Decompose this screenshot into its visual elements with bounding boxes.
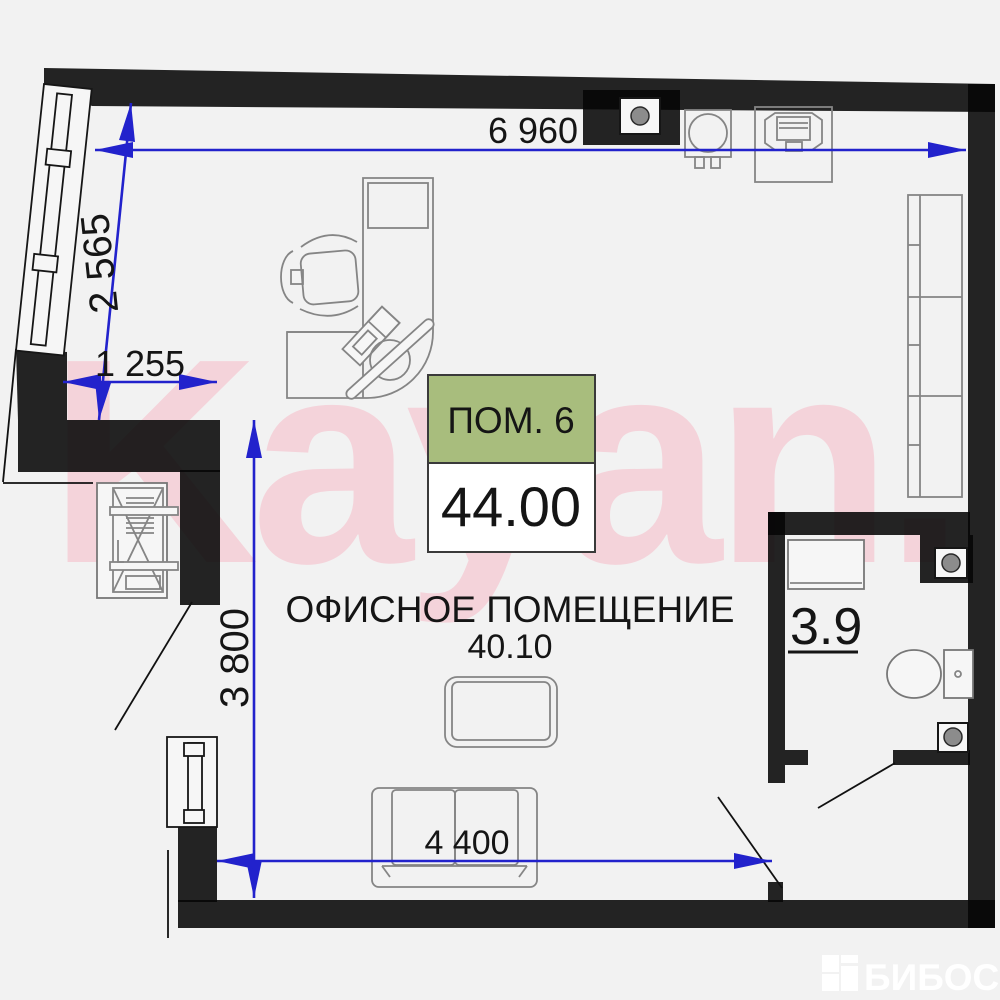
vent-circle — [631, 107, 649, 125]
room-label-box: ПОМ. 6 44.00 — [428, 375, 595, 552]
vent-circle — [942, 554, 960, 572]
vent-shaft-icon-bath-bottom — [938, 723, 968, 752]
elevator-shaft — [97, 483, 178, 598]
dimension-value: 3 800 — [213, 608, 257, 708]
sink-outline — [788, 540, 864, 589]
room-number: ПОМ. 6 — [447, 400, 574, 441]
window-mullion — [46, 149, 72, 167]
bathroom-area-label: 3.9 — [788, 598, 862, 656]
room-area: 44.00 — [441, 475, 581, 538]
wall-left-stub — [16, 348, 67, 420]
wall-lower-left — [178, 827, 217, 902]
dimension-value: 6 960 — [488, 110, 578, 151]
wall-left-band — [18, 420, 220, 472]
wall-elevator-column — [180, 470, 220, 605]
bathroom-sink — [788, 540, 864, 589]
window-mullion — [184, 810, 204, 823]
floor-plan-page: Kayan. — [0, 0, 1000, 1000]
dimension-value: 1 255 — [95, 343, 185, 384]
wall-right — [968, 84, 995, 928]
wall-bathroom-jamb — [785, 750, 808, 765]
dimension-value: 4 400 — [424, 824, 509, 862]
bathroom-area-value: 3.9 — [790, 598, 862, 656]
toilet-bowl — [887, 650, 941, 698]
window-mullion — [33, 254, 59, 272]
window-mullion — [184, 743, 204, 756]
floor-plan-drawing: Kayan. — [0, 0, 1000, 1000]
wall-bottom — [178, 900, 995, 928]
vent-shaft-icon-top — [620, 98, 660, 134]
brand-name: БИБОСС — [864, 957, 1000, 998]
elevator-rail — [110, 562, 178, 570]
window-lower-left — [167, 737, 217, 827]
toilet — [887, 650, 973, 698]
toilet-tank — [944, 650, 973, 698]
vent-circle — [944, 728, 962, 746]
elevator-rail — [110, 507, 178, 515]
wall-bathroom-left — [768, 512, 785, 783]
wall-bathroom-top — [768, 512, 970, 535]
vent-shaft-icon-bath-top — [935, 548, 967, 578]
room-title-text: ОФИСНОЕ ПОМЕЩЕНИЕ — [286, 589, 735, 630]
room-title-area: 40.10 — [467, 628, 552, 666]
